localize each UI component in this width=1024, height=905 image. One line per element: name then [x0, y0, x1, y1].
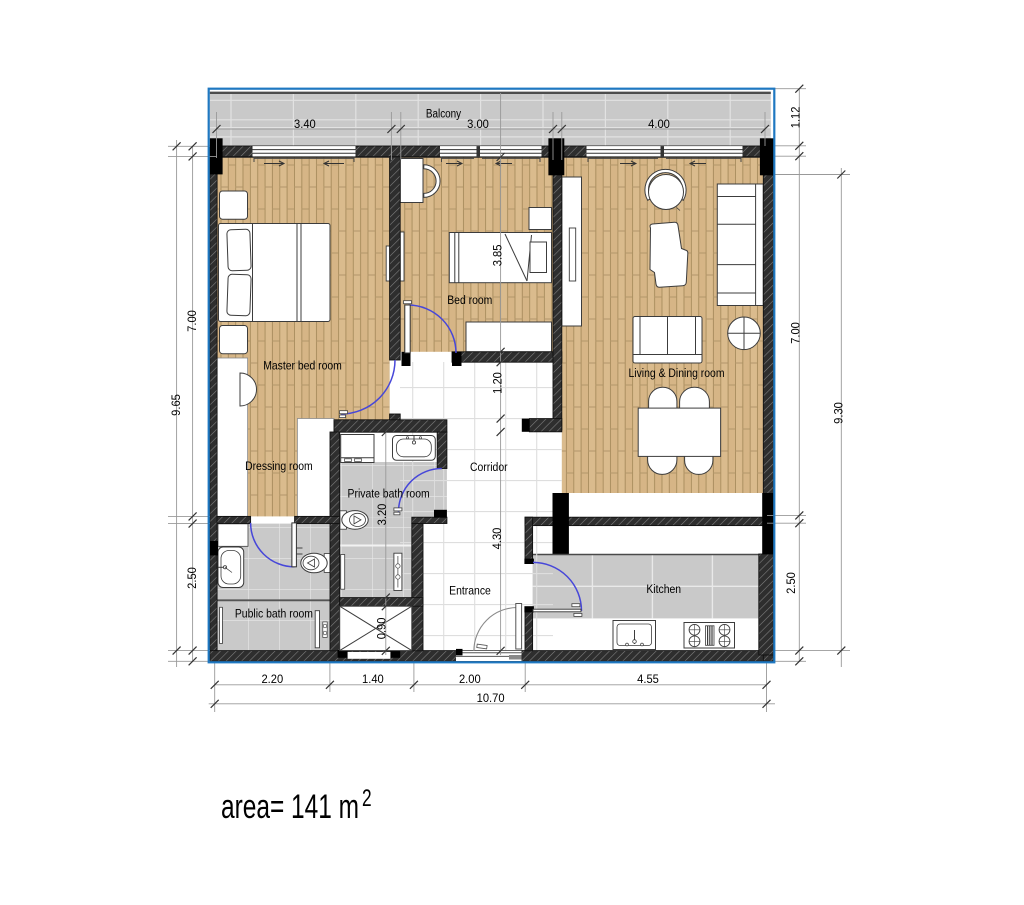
svg-text:9.65: 9.65 [170, 394, 184, 416]
svg-text:Public bath room: Public bath room [235, 608, 313, 621]
svg-text:7.00: 7.00 [186, 310, 200, 332]
svg-text:3.40: 3.40 [294, 118, 316, 132]
svg-text:Corridor: Corridor [470, 461, 508, 474]
svg-text:Private bath room: Private bath room [348, 488, 430, 501]
svg-text:2.20: 2.20 [261, 672, 283, 686]
svg-text:2.50: 2.50 [784, 572, 798, 594]
svg-text:3.85: 3.85 [491, 244, 505, 266]
svg-text:Master bed room: Master bed room [263, 360, 342, 373]
svg-text:0.90: 0.90 [375, 617, 389, 639]
svg-text:2.50: 2.50 [186, 567, 200, 589]
svg-text:Kitchen: Kitchen [646, 583, 681, 596]
svg-text:4.55: 4.55 [637, 672, 659, 686]
svg-text:2: 2 [362, 785, 372, 811]
svg-text:1.12: 1.12 [789, 107, 803, 129]
svg-text:1.40: 1.40 [362, 672, 384, 686]
svg-text:Balcony: Balcony [426, 107, 462, 120]
svg-text:2.00: 2.00 [459, 672, 481, 686]
svg-text:3.20: 3.20 [375, 503, 389, 525]
svg-text:7.00: 7.00 [789, 322, 803, 344]
svg-text:3.00: 3.00 [467, 118, 489, 132]
svg-text:area= 141 m: area= 141 m [221, 788, 359, 826]
svg-text:Dressing room: Dressing room [245, 460, 313, 473]
svg-text:1.20: 1.20 [491, 372, 505, 394]
svg-text:Entrance: Entrance [449, 585, 491, 598]
svg-text:9.30: 9.30 [832, 402, 846, 424]
svg-text:4.00: 4.00 [648, 118, 670, 132]
svg-text:Living & Dining room: Living & Dining room [629, 367, 725, 380]
svg-text:4.30: 4.30 [490, 527, 504, 549]
svg-text:Bed room: Bed room [447, 294, 492, 307]
svg-text:10.70: 10.70 [477, 691, 505, 705]
